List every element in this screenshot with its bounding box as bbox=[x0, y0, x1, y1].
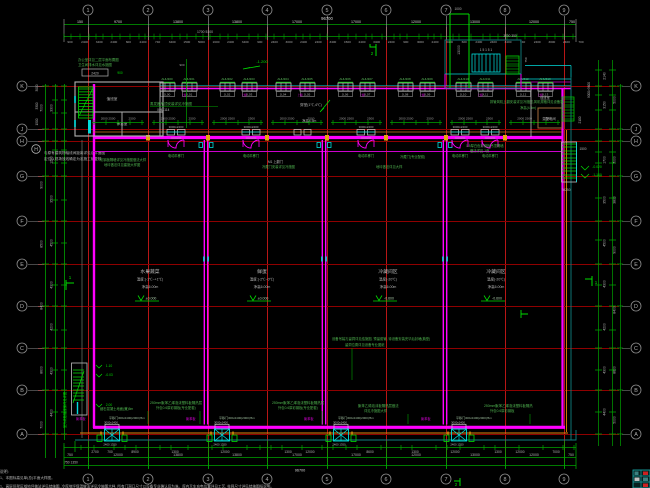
svg-text:1 5 1 5 1: 1 5 1 5 1 bbox=[480, 48, 493, 52]
svg-text:冷藏门(专业配套): 冷藏门(专业配套) bbox=[400, 154, 425, 159]
svg-text:3400: 3400 bbox=[96, 40, 103, 44]
svg-text:详见冷施图大样: 详见冷施图大样 bbox=[364, 408, 388, 413]
svg-text:1700: 1700 bbox=[603, 156, 607, 164]
svg-text:1600: 1600 bbox=[213, 40, 220, 44]
svg-text:净高6.00m: 净高6.00m bbox=[254, 284, 271, 289]
svg-text:8500: 8500 bbox=[40, 240, 44, 248]
svg-text:12000: 12000 bbox=[113, 453, 123, 457]
svg-text:H: H bbox=[20, 139, 24, 145]
svg-text:1300: 1300 bbox=[494, 450, 502, 454]
svg-text:温度:(-2℃~0℃): 温度:(-2℃~0℃) bbox=[250, 277, 274, 282]
svg-text:值班室: 值班室 bbox=[107, 96, 118, 101]
svg-text:温度(-20℃): 温度(-20℃) bbox=[487, 277, 505, 282]
svg-text:8: 8 bbox=[504, 8, 507, 14]
svg-text:鲜蛋: 鲜蛋 bbox=[257, 268, 267, 275]
svg-text:2000 2500: 2000 2500 bbox=[517, 117, 532, 121]
svg-text:96700: 96700 bbox=[295, 469, 306, 473]
svg-text:750: 750 bbox=[524, 57, 528, 62]
svg-text:AHU301: AHU301 bbox=[183, 77, 195, 81]
svg-text:250mm聚苯乙烯泡沫塑料板隔热层: 250mm聚苯乙烯泡沫塑料板隔热层 bbox=[150, 400, 203, 405]
svg-text:JL03: JL03 bbox=[246, 93, 253, 97]
svg-text:K: K bbox=[20, 84, 24, 90]
svg-text:1700 5100: 1700 5100 bbox=[197, 30, 213, 34]
svg-text:2400: 2400 bbox=[490, 40, 497, 44]
svg-text:2500: 2500 bbox=[248, 117, 255, 121]
svg-text:1.10: 1.10 bbox=[106, 364, 113, 368]
svg-text:JLM1221: JLM1221 bbox=[455, 136, 466, 140]
svg-text:8900: 8900 bbox=[131, 450, 139, 454]
svg-text:2400: 2400 bbox=[534, 40, 541, 44]
svg-text:2400: 2400 bbox=[432, 40, 439, 44]
svg-text:AHU306: AHU306 bbox=[339, 77, 351, 81]
svg-text:±0.000: ±0.000 bbox=[258, 297, 269, 301]
svg-text:3000: 3000 bbox=[286, 40, 293, 44]
svg-text:3300: 3300 bbox=[50, 104, 54, 112]
svg-text:1300: 1300 bbox=[284, 450, 292, 454]
svg-text:穿堂(1℃,4℃): 穿堂(1℃,4℃) bbox=[300, 102, 322, 107]
svg-text:2100: 2100 bbox=[578, 116, 582, 123]
svg-text:1500: 1500 bbox=[35, 118, 39, 125]
svg-text:4400: 4400 bbox=[603, 408, 607, 416]
svg-text:8600: 8600 bbox=[613, 366, 617, 374]
svg-text:5000: 5000 bbox=[613, 416, 617, 424]
svg-text:3000x2400: 3000x2400 bbox=[453, 125, 468, 129]
svg-text:2000 2500: 2000 2500 bbox=[339, 117, 354, 121]
svg-text:13000: 13000 bbox=[470, 453, 480, 457]
svg-text:AHU308: AHU308 bbox=[399, 77, 411, 81]
svg-text:2400: 2400 bbox=[140, 40, 147, 44]
svg-text:2400: 2400 bbox=[388, 40, 395, 44]
svg-text:AHU311: AHU311 bbox=[479, 77, 490, 81]
svg-text:750: 750 bbox=[569, 20, 575, 24]
svg-text:冷藏门安装详见冷施图: 冷藏门安装详见冷施图 bbox=[262, 164, 296, 169]
svg-text:7000: 7000 bbox=[40, 104, 44, 112]
svg-text:2400: 2400 bbox=[81, 40, 88, 44]
svg-text:排管风机上翻安装详见冷施图,风机规格详见设备表: 排管风机上翻安装详见冷施图,风机规格详见设备表 bbox=[490, 99, 564, 104]
svg-text:JLM1221: JLM1221 bbox=[485, 136, 496, 140]
svg-text:2400: 2400 bbox=[227, 40, 234, 44]
svg-text:净高6.00m: 净高6.00m bbox=[488, 284, 505, 289]
svg-text:700: 700 bbox=[578, 40, 583, 44]
svg-text:JL06: JL06 bbox=[342, 93, 349, 97]
svg-text:3000: 3000 bbox=[417, 40, 424, 44]
svg-text:13800: 13800 bbox=[232, 20, 242, 24]
svg-text:K: K bbox=[634, 84, 638, 90]
svg-text:3000x2400: 3000x2400 bbox=[214, 420, 228, 424]
svg-text:3000 350: 3000 350 bbox=[503, 34, 517, 38]
svg-text:3000x2400: 3000x2400 bbox=[244, 125, 259, 129]
svg-text:2000 2500: 2000 2500 bbox=[399, 117, 414, 121]
svg-text:4500: 4500 bbox=[50, 239, 54, 247]
svg-text:电动平移门: 电动平移门 bbox=[358, 153, 374, 158]
svg-text:JL07: JL07 bbox=[364, 93, 371, 97]
svg-text:电动平移门: 电动平移门 bbox=[452, 153, 468, 158]
svg-text:D: D bbox=[20, 304, 24, 310]
svg-text:3000x2400: 3000x2400 bbox=[169, 125, 184, 129]
svg-text:H: H bbox=[634, 139, 638, 145]
svg-text:250mm聚苯乙烯泡沫塑料板隔热: 250mm聚苯乙烯泡沫塑料板隔热 bbox=[484, 403, 533, 408]
svg-text:2000 2500: 2000 2500 bbox=[161, 117, 176, 121]
svg-text:3000x2400: 3000x2400 bbox=[451, 420, 465, 424]
svg-text:13800: 13800 bbox=[173, 20, 183, 24]
svg-text:JLM1221: JLM1221 bbox=[246, 136, 257, 140]
svg-text:-0.020: -0.020 bbox=[592, 165, 602, 169]
svg-text:900: 900 bbox=[117, 71, 123, 75]
svg-text:2400: 2400 bbox=[475, 40, 482, 44]
svg-text:3400: 3400 bbox=[505, 40, 512, 44]
svg-text:JL09: JL09 bbox=[424, 93, 431, 97]
svg-text:900: 900 bbox=[67, 40, 72, 44]
svg-text:J: J bbox=[635, 127, 638, 133]
svg-text:1000: 1000 bbox=[454, 7, 461, 11]
svg-text:JL02: JL02 bbox=[224, 93, 231, 97]
svg-text:12000: 12000 bbox=[220, 450, 229, 454]
svg-text:AHU302: AHU302 bbox=[221, 77, 233, 81]
svg-text:1.5厚白色彩钢板吊顶隔墙: 1.5厚白色彩钢板吊顶隔墙 bbox=[466, 143, 504, 148]
svg-text:150: 150 bbox=[77, 20, 83, 24]
svg-text:2400: 2400 bbox=[271, 40, 278, 44]
svg-text:做法详见-1页: 做法详见-1页 bbox=[470, 148, 490, 153]
svg-text:2140: 2140 bbox=[603, 72, 607, 80]
svg-text:9000>3600: 9000>3600 bbox=[587, 82, 591, 98]
svg-text:250mm聚苯乙烯泡沫塑料板隔热层: 250mm聚苯乙烯泡沫塑料板隔热层 bbox=[272, 400, 325, 405]
svg-text:2400: 2400 bbox=[315, 40, 322, 44]
svg-text:8: 8 bbox=[504, 477, 507, 483]
svg-text:4300: 4300 bbox=[50, 367, 54, 375]
svg-text:13800: 13800 bbox=[173, 453, 183, 457]
svg-text:8600: 8600 bbox=[40, 366, 44, 374]
svg-text:17000: 17000 bbox=[351, 453, 361, 457]
svg-text:3000x2400: 3000x2400 bbox=[359, 125, 374, 129]
svg-text:2400: 2400 bbox=[563, 40, 570, 44]
svg-text:E: E bbox=[634, 262, 638, 268]
svg-text:2420: 2420 bbox=[91, 72, 99, 76]
svg-text:AHU300: AHU300 bbox=[161, 77, 173, 81]
svg-text:2500: 2500 bbox=[189, 117, 196, 121]
svg-text:700: 700 bbox=[107, 450, 113, 454]
svg-text:2400 1350: 2400 1350 bbox=[332, 442, 346, 446]
svg-text:JL08: JL08 bbox=[402, 93, 409, 97]
svg-text:750: 750 bbox=[568, 453, 574, 457]
svg-text:A: A bbox=[634, 432, 638, 438]
svg-text:9: 9 bbox=[563, 477, 566, 483]
svg-text:96700: 96700 bbox=[321, 16, 333, 21]
svg-text:2: 2 bbox=[147, 8, 150, 14]
svg-text:聚苯乙烯泡沫板隔热层做法: 聚苯乙烯泡沫板隔热层做法 bbox=[358, 403, 399, 408]
svg-text:17000: 17000 bbox=[292, 453, 302, 457]
svg-text:聚苯板: 聚苯板 bbox=[186, 416, 196, 421]
svg-text:室外疏散钢楼梯详见详图: 室外疏散钢楼梯详见详图 bbox=[62, 391, 67, 428]
svg-text:-0.600: -0.600 bbox=[492, 297, 502, 301]
svg-text:2500: 2500 bbox=[129, 117, 136, 121]
svg-text:1、高层货架区域地坪做法详见结施图, 冷库地坪保温做法详见冷: 1、高层货架区域地坪做法详见结施图, 冷库地坪保温做法详见冷施图大样, 所有门洞… bbox=[0, 484, 274, 488]
svg-text:XHL-114: XHL-114 bbox=[157, 108, 170, 112]
svg-text:3500: 3500 bbox=[603, 196, 607, 204]
svg-text:4300: 4300 bbox=[603, 366, 607, 374]
svg-text:聚苯板: 聚苯板 bbox=[76, 416, 86, 421]
svg-text:外包0.6厚彩钢板(专业配套): 外包0.6厚彩钢板(专业配套) bbox=[156, 405, 196, 410]
svg-text:4500: 4500 bbox=[603, 239, 607, 247]
svg-text:12000: 12000 bbox=[450, 450, 459, 454]
svg-text:外包0.6厚彩钢板: 外包0.6厚彩钢板 bbox=[490, 408, 515, 413]
svg-text:3: 3 bbox=[207, 477, 210, 483]
svg-text:9000: 9000 bbox=[613, 246, 617, 254]
svg-text:聚苯板: 聚苯板 bbox=[421, 416, 431, 421]
svg-text:J: J bbox=[21, 127, 24, 133]
svg-text:8600: 8600 bbox=[366, 450, 374, 454]
svg-text:彩钢板隔墙详见冷施图做法大样: 彩钢板隔墙详见冷施图做法大样 bbox=[100, 157, 147, 162]
svg-text:净高4.5m: 净高4.5m bbox=[302, 118, 316, 123]
svg-text:G: G bbox=[634, 174, 638, 180]
svg-text:JL12: JL12 bbox=[520, 93, 527, 97]
svg-text:电动平移门: 电动平移门 bbox=[243, 153, 259, 158]
svg-text:上翻: 上翻 bbox=[297, 93, 303, 97]
svg-text:3400: 3400 bbox=[373, 40, 380, 44]
svg-text:3: 3 bbox=[207, 8, 210, 14]
svg-text:2400: 2400 bbox=[300, 40, 307, 44]
svg-text:JLM1221: JLM1221 bbox=[361, 136, 372, 140]
svg-text:6: 6 bbox=[385, 8, 388, 14]
svg-text:1: 1 bbox=[87, 477, 90, 483]
svg-text:12000: 12000 bbox=[529, 453, 539, 457]
svg-text:水果蔬菜: 水果蔬菜 bbox=[140, 268, 159, 275]
svg-text:3400: 3400 bbox=[329, 40, 336, 44]
svg-text:9: 9 bbox=[563, 8, 566, 14]
svg-text:与原有建筑物轴线间距离详见总平面图: 与原有建筑物轴线间距离详见总平面图 bbox=[44, 150, 105, 155]
svg-text:温度(-20℃): 温度(-20℃) bbox=[379, 277, 397, 282]
svg-text:600: 600 bbox=[462, 40, 467, 44]
svg-text:740: 740 bbox=[155, 40, 160, 44]
svg-text:3000x2400: 3000x2400 bbox=[483, 125, 498, 129]
svg-text:6: 6 bbox=[385, 477, 388, 483]
svg-text:B: B bbox=[634, 388, 638, 394]
svg-text:JL05: JL05 bbox=[304, 93, 311, 97]
svg-text:D: D bbox=[634, 304, 638, 310]
svg-text:17000: 17000 bbox=[351, 20, 361, 24]
svg-text:4: 4 bbox=[266, 477, 269, 483]
svg-text:2: 2 bbox=[147, 477, 150, 483]
svg-text:5: 5 bbox=[326, 477, 329, 483]
svg-text:冷藏间区: 冷藏间区 bbox=[486, 268, 505, 275]
svg-text:电动平移门: 电动平移门 bbox=[168, 153, 184, 158]
svg-text:AHU309: AHU309 bbox=[421, 77, 433, 81]
svg-text:750: 750 bbox=[67, 453, 73, 457]
svg-text:-1.200: -1.200 bbox=[256, 59, 268, 64]
svg-text:净高(4.5m): 净高(4.5m) bbox=[520, 105, 536, 110]
svg-text:AHU313: AHU313 bbox=[539, 77, 551, 81]
svg-text:2000 2500: 2000 2500 bbox=[220, 117, 235, 121]
svg-text:12000: 12000 bbox=[411, 453, 421, 457]
svg-text:900: 900 bbox=[403, 40, 408, 44]
svg-text:上翻: 上翻 bbox=[359, 93, 365, 97]
svg-text:AHU310: AHU310 bbox=[457, 77, 469, 81]
svg-text:3300: 3300 bbox=[35, 102, 39, 109]
svg-text:平移门300x2400(2000)/5m: 平移门300x2400(2000)/5m bbox=[219, 415, 255, 420]
svg-text:地坪做法详见建施大样图: 地坪做法详见建施大样图 bbox=[104, 162, 141, 167]
svg-text:3400: 3400 bbox=[169, 40, 176, 44]
svg-text:-1.100: -1.100 bbox=[592, 173, 602, 177]
svg-text:900: 900 bbox=[257, 40, 262, 44]
svg-text:JL04: JL04 bbox=[280, 93, 287, 97]
svg-text:蒸发器吊顶安装详见冷施图: 蒸发器吊顶安装详见冷施图 bbox=[150, 101, 192, 106]
svg-text:1500: 1500 bbox=[579, 147, 586, 151]
svg-text:3000: 3000 bbox=[548, 40, 555, 44]
svg-text:C: C bbox=[20, 346, 24, 352]
svg-text:聚苯板: 聚苯板 bbox=[304, 416, 314, 421]
svg-text:12000: 12000 bbox=[305, 450, 314, 454]
svg-text:地坪做法详见大样: 地坪做法详见大样 bbox=[376, 164, 403, 169]
svg-text:9700: 9700 bbox=[114, 20, 122, 24]
svg-text:1500: 1500 bbox=[344, 40, 351, 44]
svg-text:2500: 2500 bbox=[486, 117, 493, 121]
svg-text:2400 1350: 2400 1350 bbox=[450, 442, 464, 446]
svg-text:13000: 13000 bbox=[470, 20, 480, 24]
svg-text:1、本图标高见单(总)平面大样图。: 1、本图标高见单(总)平面大样图。 bbox=[0, 475, 55, 480]
svg-text:3500: 3500 bbox=[50, 195, 54, 203]
svg-text:±0.000: ±0.000 bbox=[146, 297, 157, 301]
svg-text:电动平移门: 电动平移门 bbox=[482, 153, 498, 158]
svg-text:4200: 4200 bbox=[50, 323, 54, 331]
svg-text:H: H bbox=[34, 147, 38, 153]
svg-text:4200: 4200 bbox=[603, 323, 607, 331]
svg-text:4400: 4400 bbox=[50, 409, 54, 417]
svg-text:平移门300x2400(2000)/5m: 平移门300x2400(2000)/5m bbox=[456, 415, 492, 420]
svg-text:AHU303: AHU303 bbox=[243, 77, 255, 81]
svg-text:2500: 2500 bbox=[427, 117, 434, 121]
svg-text:7: 7 bbox=[445, 8, 448, 14]
svg-text:17000: 17000 bbox=[292, 20, 302, 24]
svg-text:3000: 3000 bbox=[35, 84, 39, 91]
svg-text:细石混凝土地面(兼)5m: 细石混凝土地面(兼)5m bbox=[100, 406, 133, 411]
svg-text:2000 2500: 2000 2500 bbox=[101, 117, 116, 121]
svg-text:12000: 12000 bbox=[529, 20, 539, 24]
svg-text:办公室详见二层平面布置图: 办公室详见二层平面布置图 bbox=[78, 57, 119, 62]
svg-text:4300: 4300 bbox=[50, 281, 54, 289]
svg-text:2000 2500: 2000 2500 bbox=[458, 117, 473, 121]
svg-text:AHU304: AHU304 bbox=[277, 77, 289, 81]
svg-text:3150: 3150 bbox=[603, 101, 607, 109]
svg-text:12000: 12000 bbox=[411, 20, 421, 24]
svg-text:8400: 8400 bbox=[40, 302, 44, 310]
svg-text:600: 600 bbox=[126, 40, 131, 44]
svg-text:设备吊装孔留洞详见结施图, 预留套管, 待设备安装完毕后封堵: 设备吊装孔留洞详见结施图, 预留套管, 待设备安装完毕后封堵(典型) bbox=[332, 336, 430, 341]
svg-text:13000: 13000 bbox=[457, 45, 461, 55]
svg-text:C: C bbox=[634, 346, 638, 352]
svg-text:卫生间排水详见水施图: 卫生间排水详见水施图 bbox=[78, 62, 113, 67]
svg-text:4300: 4300 bbox=[603, 280, 607, 288]
svg-text:AHU305: AHU305 bbox=[301, 77, 313, 81]
svg-text:2400 1350: 2400 1350 bbox=[213, 442, 227, 446]
svg-text:留洞位置详见设备专业图纸: 留洞位置详见设备专业图纸 bbox=[345, 342, 385, 347]
svg-text:7θ250: 7θ250 bbox=[561, 188, 570, 192]
svg-text:2400: 2400 bbox=[359, 40, 366, 44]
svg-text:净高6.00m: 净高6.00m bbox=[142, 284, 159, 289]
svg-text:2000 2500: 2000 2500 bbox=[280, 117, 295, 121]
svg-text:JL10: JL10 bbox=[460, 93, 467, 97]
svg-text:5000: 5000 bbox=[198, 40, 205, 44]
svg-text:7000: 7000 bbox=[40, 421, 44, 429]
svg-text:净高6.00m: 净高6.00m bbox=[380, 284, 397, 289]
svg-text:900: 900 bbox=[179, 63, 184, 67]
svg-text:1500: 1500 bbox=[183, 40, 190, 44]
svg-text:12000: 12000 bbox=[515, 450, 524, 454]
svg-text:外包0.6厚彩钢板(专业配套): 外包0.6厚彩钢板(专业配套) bbox=[278, 405, 318, 410]
svg-text:温度:(-1℃~+1℃): 温度:(-1℃~+1℃) bbox=[137, 277, 163, 282]
svg-text:3800: 3800 bbox=[613, 196, 617, 204]
svg-text:平移门300x2400(2000)/5m: 平移门300x2400(2000)/5m bbox=[338, 415, 374, 420]
svg-text:说明:: 说明: bbox=[0, 469, 9, 474]
svg-text:JLM1221: JLM1221 bbox=[171, 136, 182, 140]
svg-text:JL11: JL11 bbox=[482, 93, 489, 97]
svg-text:2700: 2700 bbox=[91, 450, 99, 454]
svg-text:M1 上翻门: M1 上翻门 bbox=[268, 159, 283, 164]
svg-text:B: B bbox=[20, 388, 24, 394]
svg-text:3400: 3400 bbox=[242, 40, 249, 44]
svg-text:AHU307: AHU307 bbox=[361, 77, 373, 81]
svg-text:3000x2400: 3000x2400 bbox=[104, 420, 118, 424]
svg-text:A: A bbox=[20, 432, 24, 438]
svg-text:1: 1 bbox=[87, 8, 90, 14]
svg-text:7: 7 bbox=[445, 477, 448, 483]
svg-text:5000: 5000 bbox=[613, 96, 617, 104]
svg-text:9000: 9000 bbox=[40, 181, 44, 189]
svg-text:值班室: 值班室 bbox=[540, 95, 550, 100]
svg-text:上翻: 上翻 bbox=[419, 93, 425, 97]
svg-text:JL00: JL00 bbox=[164, 93, 171, 97]
svg-text:750 1350: 750 1350 bbox=[64, 461, 78, 465]
svg-text:上翻: 上翻 bbox=[241, 93, 247, 97]
svg-text:E: E bbox=[20, 262, 24, 268]
svg-text:-0.03: -0.03 bbox=[105, 373, 113, 377]
svg-text:5: 5 bbox=[326, 8, 329, 14]
svg-text:上翻: 上翻 bbox=[477, 93, 483, 97]
svg-text:2500: 2500 bbox=[367, 117, 374, 121]
svg-text:7000: 7000 bbox=[613, 156, 617, 164]
svg-text:7000: 7000 bbox=[552, 450, 560, 454]
svg-text:AHU312: AHU312 bbox=[517, 77, 529, 81]
svg-text:-0.600: -0.600 bbox=[384, 297, 394, 301]
svg-text:3000x2400: 3000x2400 bbox=[333, 420, 347, 424]
svg-text:13800: 13800 bbox=[232, 453, 242, 457]
svg-text:G: G bbox=[20, 174, 24, 180]
svg-text:4: 4 bbox=[266, 8, 269, 14]
svg-text:8400: 8400 bbox=[613, 306, 617, 314]
svg-text:冷藏间区: 冷藏间区 bbox=[378, 268, 397, 275]
svg-text:平移门300x2400(2000)/5m: 平移门300x2400(2000)/5m bbox=[109, 415, 145, 420]
svg-text:变配电间: 变配电间 bbox=[542, 116, 556, 121]
svg-text:2400 1350: 2400 1350 bbox=[103, 442, 117, 446]
svg-text:2400: 2400 bbox=[110, 40, 117, 44]
